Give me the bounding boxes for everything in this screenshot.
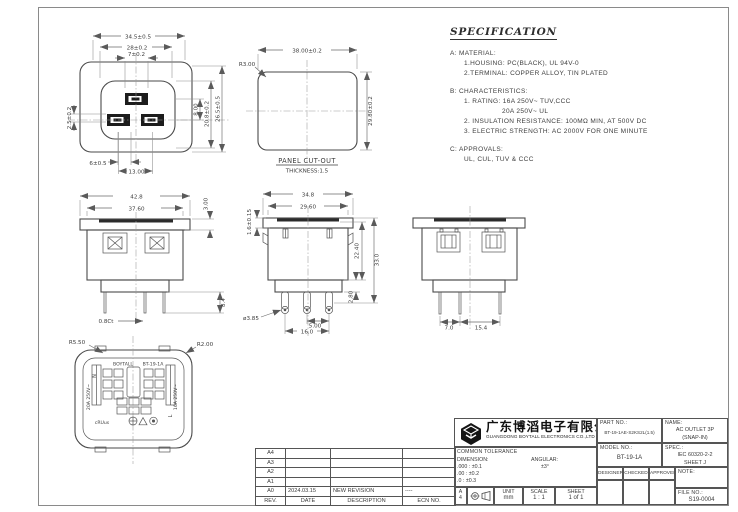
side-view-drawing: 34.8 29.60 1.6±0.15 22.40 33.0 2.80 ø3.8…	[243, 193, 380, 337]
company-name-cn: 广东博滔电子有限公司	[486, 421, 597, 434]
drawing-sheet: 34.5±0.5 28±0.2 7±0.2 8.00 20.8±0.2 26.5…	[0, 0, 738, 512]
front-view-drawing: 34.5±0.5 28±0.2 7±0.2 8.00 20.8±0.2 26.5…	[67, 35, 230, 176]
dim-side-body-width: 29.60	[300, 205, 316, 211]
right-view-drawing: 7.0 15.4	[413, 206, 525, 332]
file-no-cell: FILE NO.: S19-0004	[675, 488, 728, 505]
dim-panel-height: 29.80±0.2	[368, 96, 374, 126]
tolerance-cell: COMMON TOLERANCE DIMENSION: ANGULAR: .00…	[454, 447, 597, 487]
rear-model-text: BT-19-1A	[143, 362, 165, 368]
dim-side-total-height: 33.0	[375, 253, 381, 266]
rear-rating-right: 16A 250V~	[173, 384, 179, 410]
dim-front-bottom-pitch: 13.00	[128, 170, 144, 176]
table-row: A1	[256, 477, 456, 487]
paper-size-cell: A 4	[454, 487, 467, 505]
dim-side-flange-width: 34.8	[302, 193, 315, 199]
rear-view-drawing: BOYTALL BT-19-1A N 20A 250V~ 16A 250V~ L…	[69, 336, 214, 464]
dim-panel-radius: R3.00	[239, 62, 256, 68]
dim-front-mid-width: 28±0.2	[127, 46, 148, 52]
tolerance-row-3: .0 : ±0.3	[457, 478, 476, 485]
dim-front-outer-width: 34.5±0.5	[125, 35, 151, 41]
name-value-1: AC OUTLET 3P	[663, 427, 727, 433]
rev-desc	[331, 468, 403, 478]
dim-top-flange-thickness: 3.00	[204, 197, 210, 210]
table-row: A3	[256, 458, 456, 468]
rear-rating-left: 20A 250V~	[86, 384, 92, 410]
panel-cutout-drawing: 38.00±0.2 R3.00 29.80±0.2 PANEL CUT-OUT …	[239, 49, 374, 175]
top-view-drawing: 42.8 37.60 3.00 8.4 0.8Ct	[80, 195, 227, 326]
tolerance-row-2: .00 : ±0.2	[457, 471, 479, 478]
note-cell: NOTE:	[675, 467, 728, 488]
dim-rear-radius-corner: R2.00	[197, 342, 214, 348]
rev-ecn	[403, 458, 456, 468]
checked-header-cell: CHECKED	[623, 467, 649, 480]
part-no-cell: PART NO.: BT-19-1AE-S2KS2L(1.5)	[597, 418, 662, 443]
dim-side-step: 2.80	[349, 290, 355, 303]
rev-ecn: ----	[403, 487, 456, 497]
dim-side-body-height: 22.40	[355, 243, 361, 259]
unit-value: mm	[495, 495, 522, 501]
date-header: DATE	[286, 496, 331, 506]
projection-cell	[467, 487, 494, 505]
spec-electric-strength: 3. ELECTRIC STRENGTH: AC 2000V FOR ONE M…	[450, 127, 736, 137]
table-header-row: REV. DATE DESCRIPTION ECN NO.	[256, 496, 456, 506]
panel-thickness-label: THICKNESS:1.5	[285, 169, 329, 175]
ecn-header: ECN NO.	[403, 496, 456, 506]
spec-material-terminal: 2.TERMINAL: COPPER ALLOY, TIN PLATED	[450, 69, 736, 79]
rev-id: A2	[256, 468, 286, 478]
tolerance-dim-label: DIMENSION:	[457, 457, 489, 464]
file-no-label: FILE NO.:	[678, 490, 703, 496]
company-name-en: GUANGDONG BOYTALL ELECTRONICS CO.,LTD	[486, 434, 597, 439]
dim-top-pin-length: 8.4	[221, 298, 227, 307]
name-cell: NAME: AC OUTLET 3P (SNAP-IN)	[662, 418, 728, 443]
panel-cutout-caption: PANEL CUT-OUT	[278, 157, 336, 165]
rev-id: A3	[256, 458, 286, 468]
dim-right-pin-a: 7.0	[445, 326, 454, 332]
rear-brand-text: BOYTALL	[113, 362, 133, 368]
model-no-label: MODEL NO.:	[600, 445, 632, 451]
dim-side-pin-b: 16.0	[301, 330, 314, 336]
rev-id: A0	[256, 487, 286, 497]
certification-circle-icon	[150, 417, 158, 425]
rev-id: A1	[256, 477, 286, 487]
dim-side-flange-thickness: 1.6±0.15	[247, 209, 253, 235]
name-value-2: (SNAP-IN)	[663, 435, 727, 441]
dim-top-body-width: 37.60	[128, 207, 144, 213]
third-angle-projection-icon	[468, 488, 493, 504]
specification-title: SPECIFICATION	[450, 26, 557, 40]
certification-triangle-icon	[139, 418, 147, 425]
scale-value: 1 : 1	[524, 495, 554, 501]
scale-cell: SCALE 1 : 1	[523, 487, 555, 505]
rev-date	[286, 458, 331, 468]
file-no-value: S19-0004	[676, 497, 727, 503]
title-block: 广东博滔电子有限公司 GUANGDONG BOYTALL ELECTRONICS…	[454, 418, 728, 505]
spec-rating-line2: 20A 250V~ UL	[450, 107, 736, 117]
dim-front-left: 2.5±0.2	[67, 107, 73, 129]
table-row: A4	[256, 449, 456, 459]
spec-material-housing: 1.HOUSING: PC(BLACK), UL 94V-0	[450, 59, 736, 69]
dim-side-pin-diameter: ø3.85	[243, 316, 259, 322]
ground-symbol-icon	[129, 417, 137, 425]
dim-front-outer-height: 26.5±0.5	[216, 96, 222, 122]
model-no-value: BT-19-1A	[598, 455, 661, 461]
rev-date	[286, 477, 331, 487]
sheet-cell: SHEET 1 of 1	[555, 487, 597, 505]
dim-front-mid-height: 20.8±0.2	[205, 101, 211, 127]
company-cell: 广东博滔电子有限公司 GUANGDONG BOYTALL ELECTRONICS…	[454, 418, 597, 447]
spec-insulation: 2. INSULATION RESISTANCE: 100MΩ MIN, AT …	[450, 117, 736, 127]
rear-neutral-mark: N	[92, 374, 98, 378]
rear-live-mark: L	[168, 414, 174, 417]
paper-size-4: 4	[455, 495, 466, 501]
sheet-value: 1 of 1	[556, 495, 596, 501]
designer-header-cell: DESIGNER	[597, 467, 623, 480]
ul-recognized-icon: cRUus	[95, 420, 110, 426]
description-header: DESCRIPTION	[331, 496, 403, 506]
rev-date	[286, 449, 331, 459]
spec-rating-line1: 1. RATING: 16A 250V~ TUV,CCC	[450, 97, 736, 107]
table-row: A2	[256, 468, 456, 478]
checked-label: CHECKED	[624, 471, 648, 476]
spec-value-1: IEC 60320-2-2	[663, 452, 727, 458]
approved-label: APPROVED	[650, 471, 674, 476]
checked-signature-cell	[623, 480, 649, 505]
rev-desc	[331, 458, 403, 468]
boytall-logo	[459, 422, 483, 446]
rev-ecn	[403, 449, 456, 459]
dim-front-slot-height: 8.00	[194, 103, 200, 116]
spec-characteristics-label: B: CHARACTERISTICS:	[450, 87, 736, 97]
spec-approvals-list: UL, CUL, TUV & CCC	[450, 155, 736, 165]
tolerance-row-1: .000 : ±0.1	[457, 464, 482, 471]
model-no-cell: MODEL NO.: BT-19-1A	[597, 443, 662, 467]
tolerance-angular-value: ±3°	[541, 464, 549, 471]
tolerance-angular-label: ANGULAR:	[531, 457, 558, 464]
spec-approvals-label: C: APPROVALS:	[450, 145, 736, 155]
unit-cell: UNIT mm	[494, 487, 523, 505]
dim-front-slot-width: 7±0.2	[128, 52, 145, 58]
tolerance-header: COMMON TOLERANCE	[457, 449, 517, 455]
note-label: NOTE:	[678, 469, 695, 475]
revision-table: A4 A3 A2 A1 A0 2024.03.15 NEW REVISION	[255, 448, 456, 506]
rev-date	[286, 468, 331, 478]
dim-rear-radius-outer: R5.50	[69, 340, 86, 346]
dim-front-bottom-small: 6±0.5	[89, 161, 107, 167]
spec-label: SPEC.:	[665, 445, 683, 451]
spec-value-2: SHEET J	[663, 460, 727, 466]
part-no-label: PART NO.:	[600, 420, 627, 426]
approved-header-cell: APPROVED	[649, 467, 675, 480]
rev-header: REV.	[256, 496, 286, 506]
spec-cell: SPEC.: IEC 60320-2-2 SHEET J	[662, 443, 728, 467]
part-no-value: BT-19-1AE-S2KS2L(1.5)	[598, 430, 661, 435]
table-row: A0 2024.03.15 NEW REVISION ----	[256, 487, 456, 497]
rev-desc: NEW REVISION	[331, 487, 403, 497]
rev-desc	[331, 449, 403, 459]
rev-date: 2024.03.15	[286, 487, 331, 497]
spec-material-label: A: MATERIAL:	[450, 49, 736, 59]
designer-label: DESIGNER	[598, 471, 622, 476]
dim-top-flange-width: 42.8	[130, 195, 143, 201]
rev-ecn	[403, 477, 456, 487]
approved-signature-cell	[649, 480, 675, 505]
dim-panel-width: 38.00±0.2	[292, 49, 322, 55]
rev-desc	[331, 477, 403, 487]
specification-block: SPECIFICATION A: MATERIAL: 1.HOUSING: PC…	[450, 22, 736, 165]
name-label: NAME:	[665, 420, 682, 426]
dim-right-pin-b: 15.4	[475, 326, 488, 332]
dim-top-pin-thickness: 0.8Ct	[99, 319, 115, 325]
designer-signature-cell	[597, 480, 623, 505]
rev-id: A4	[256, 449, 286, 459]
rev-ecn	[403, 468, 456, 478]
